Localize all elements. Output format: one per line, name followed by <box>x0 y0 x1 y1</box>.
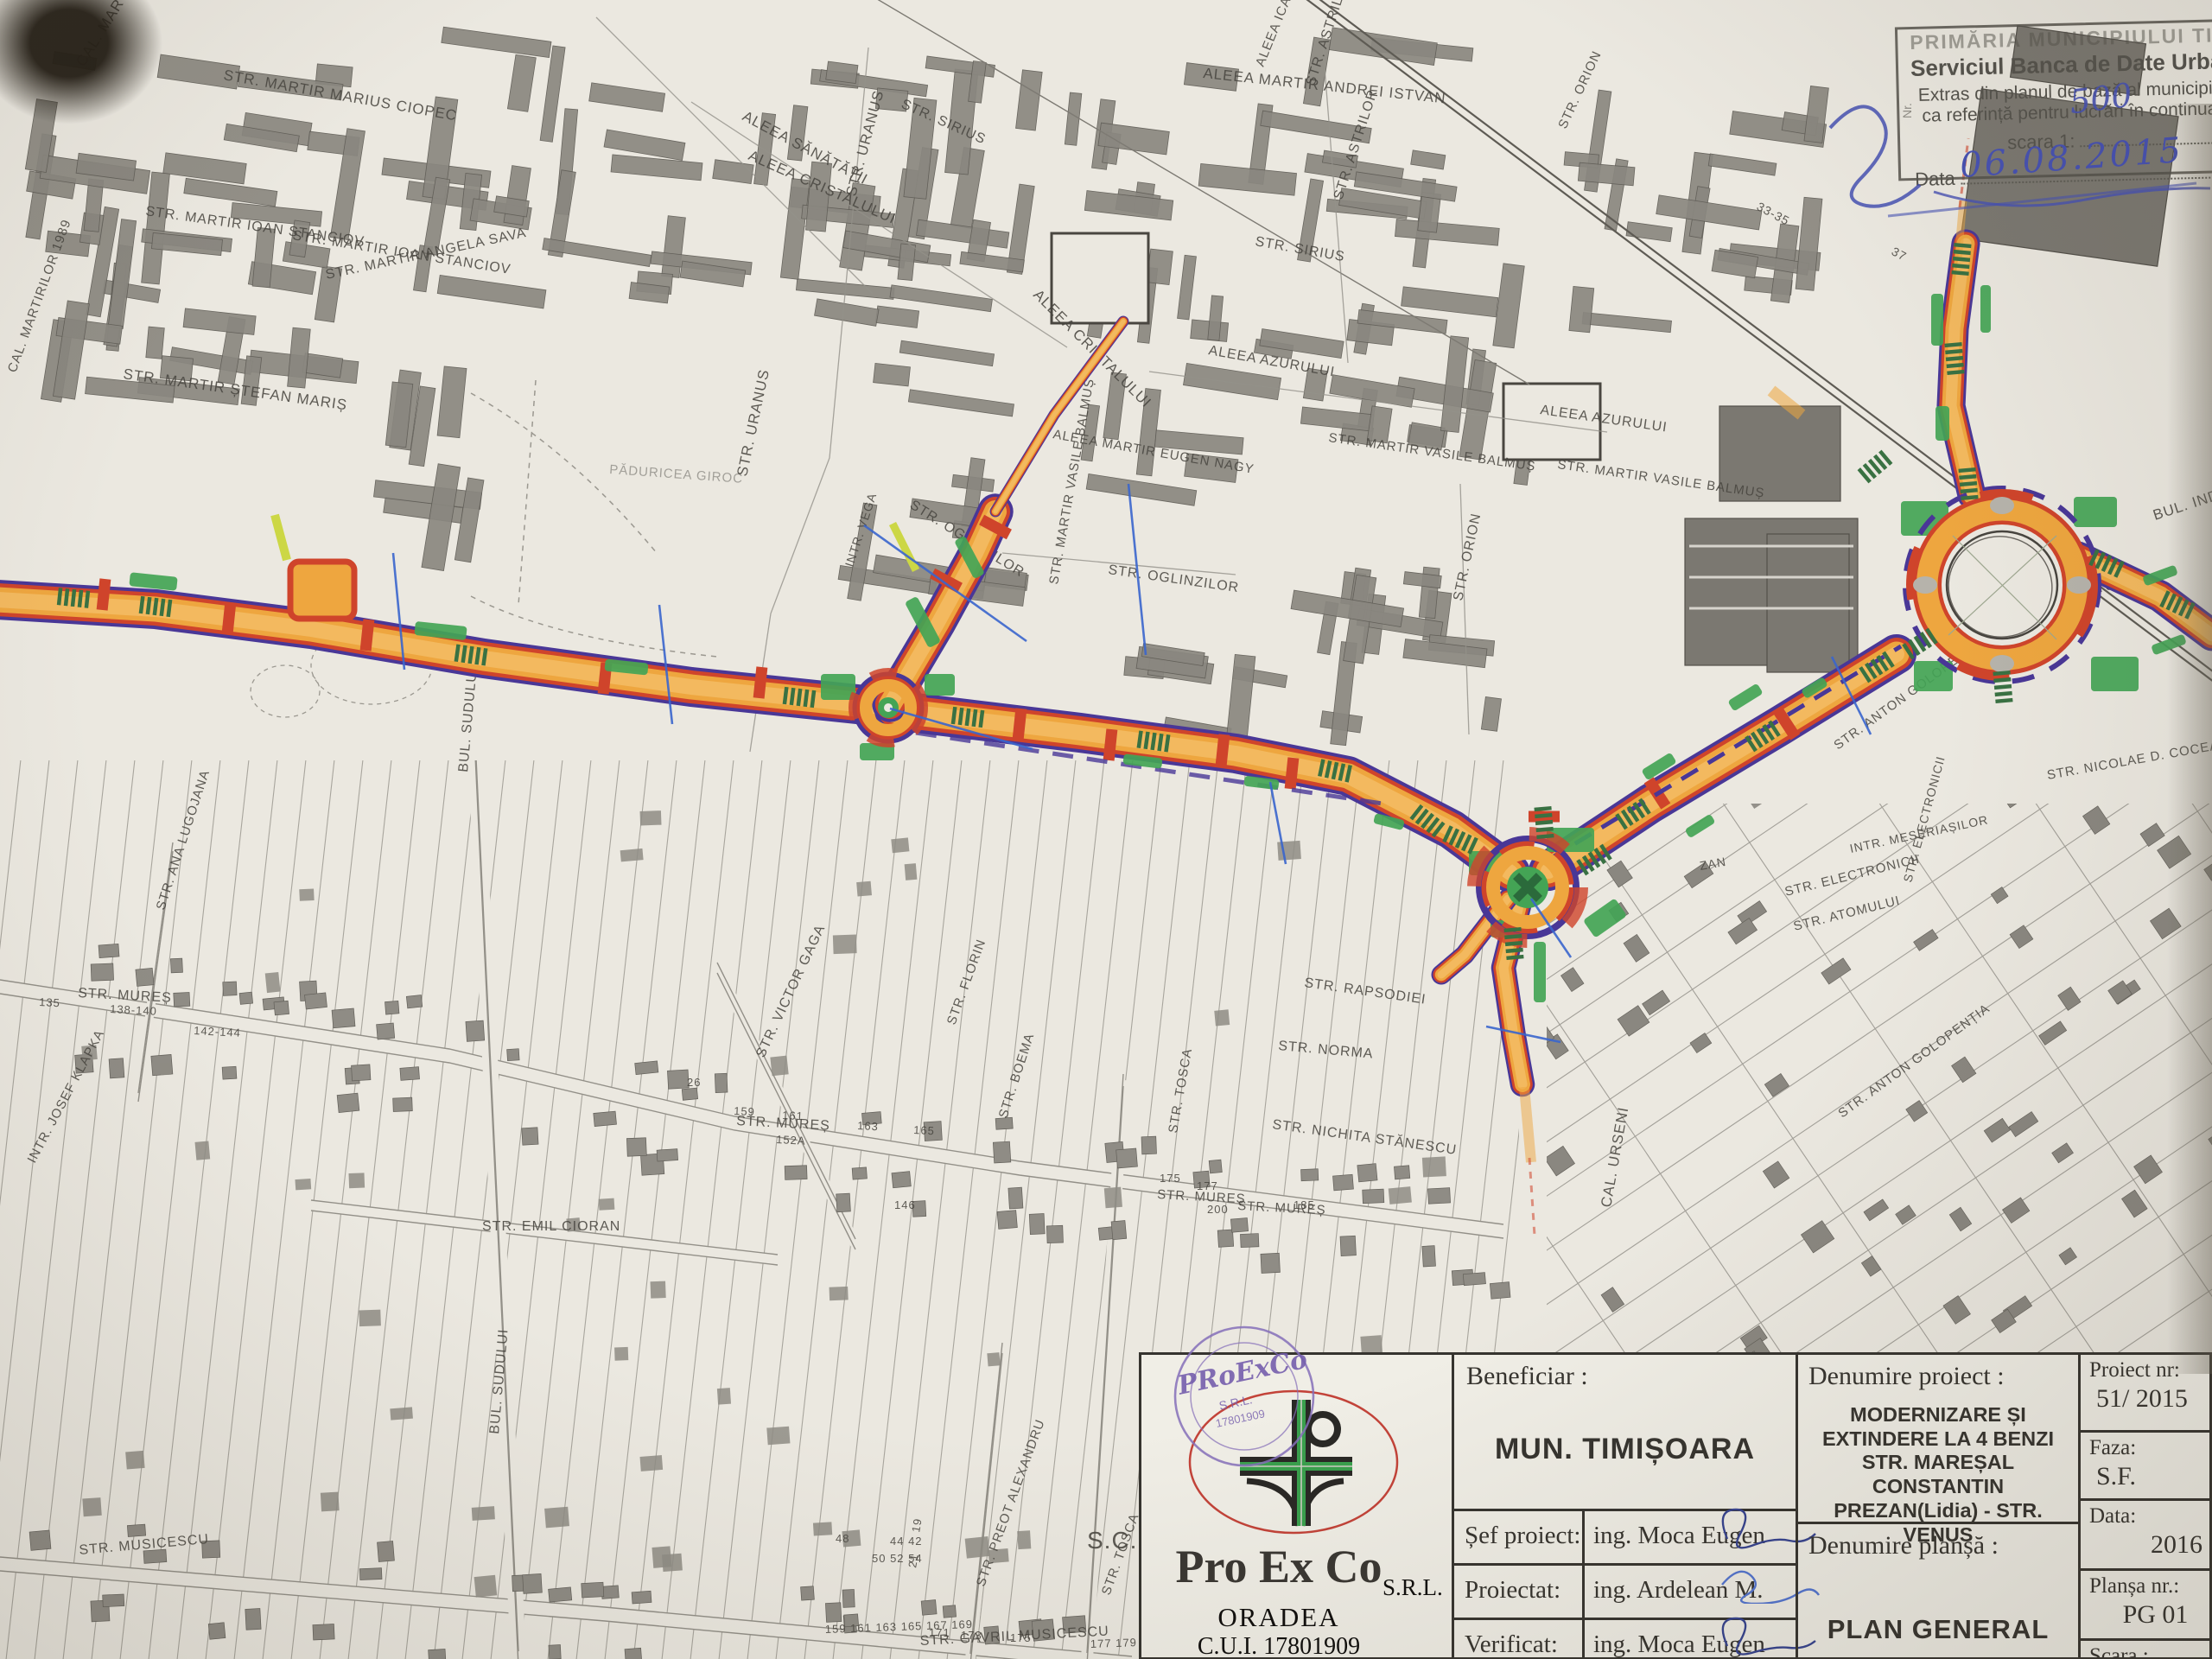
svg-text:PRoExCo: PRoExCo <box>1174 1344 1310 1402</box>
street-label: STR. TOSCA <box>1166 1047 1195 1135</box>
plansa-title: PLAN GENERAL <box>1798 1614 2078 1645</box>
street-label: STR. BOEMA <box>996 1031 1038 1120</box>
company-cui: C.U.I. 17801909 <box>1149 1633 1408 1659</box>
street-label: STR. URANUS <box>734 367 772 477</box>
proiectat-row: Proiectat: ing. Ardelean M. <box>1452 1563 1798 1620</box>
street-label: 19 <box>909 1517 925 1534</box>
street-label: STR. ELECTRONICII <box>1783 852 1922 899</box>
street-label: BUL. SUDULUI <box>456 666 480 772</box>
street-label: 200 <box>1207 1203 1229 1216</box>
pen-signature-blue <box>1797 86 2212 276</box>
street-label: 175 <box>1160 1172 1181 1185</box>
denumire-proiect-label: Denumire proiect : <box>1808 1362 2078 1391</box>
street-label: 135 <box>39 995 60 1009</box>
street-label: 26 <box>687 1076 701 1089</box>
street-label: STR. EMIL CIORAN <box>482 1219 620 1234</box>
street-label: 142-144 <box>194 1024 241 1039</box>
faza-cell: Faza: S.F. <box>2078 1430 2212 1498</box>
street-label: STR. NORMA <box>1278 1039 1375 1062</box>
street-label: STR. ORION <box>1451 512 1484 602</box>
photo-edge-shadow <box>2167 104 2212 1374</box>
beneficiar-value: MUN. TIMIȘOARA <box>1454 1433 1796 1466</box>
proexco-round-stamp: PRoExCo S.R.L. 17801909 <box>1168 1320 1320 1472</box>
street-label: STR. FLORIN <box>944 938 989 1027</box>
street-label: S.C. <box>1087 1527 1137 1554</box>
street-label: 159 <box>734 1104 755 1118</box>
street-label: 21 <box>906 1553 921 1569</box>
street-label: 33-35 <box>1755 200 1793 228</box>
photo-corner-shadow <box>0 0 199 156</box>
denumire-plansa-cell: Denumire planșă : PLAN GENERAL <box>1796 1522 2078 1659</box>
street-label: PĂDURICEA GIROC <box>609 462 744 486</box>
street-label: 163 <box>857 1119 879 1133</box>
company-suffix: S.R.L. <box>1382 1574 1443 1601</box>
plan-photo: CAL. MARTIRILORCAL. MARTIRILOR 1989STR. … <box>0 0 2212 1659</box>
sef-proiect-row: Șef proiect: ing. Moca Eugen <box>1452 1509 1798 1566</box>
street-label: 152A <box>776 1133 806 1147</box>
denumire-plansa-label: Denumire planșă : <box>1808 1531 2078 1560</box>
street-label: 48 <box>836 1532 849 1545</box>
street-label: 146 <box>894 1198 916 1211</box>
street-label: STR. NICHITA STĂNESCU <box>1271 1116 1458 1158</box>
street-label: ALEEA ICAR <box>1253 0 1298 68</box>
street-label: 44 42 <box>890 1535 923 1548</box>
data-cell: Data: 2016 <box>2078 1498 2212 1568</box>
beneficiar-cell: Beneficiar : MUN. TIMIȘOARA <box>1452 1355 1796 1509</box>
street-label: STR. TOSCA <box>1099 1511 1142 1597</box>
verificat-row: Verificat: ing. Moca Eugen <box>1452 1618 1798 1659</box>
company-name: Pro Ex Co <box>1149 1540 1408 1593</box>
street-label: CAL. URSENI <box>1598 1105 1631 1208</box>
street-label: ZAN <box>1699 855 1727 873</box>
street-label: 165 <box>913 1123 935 1137</box>
street-label: STR. OGLINZILOR <box>1107 563 1240 595</box>
plansa-nr-cell: Planșa nr.: PG 01 <box>2078 1568 2212 1638</box>
crosswalks-layer <box>59 245 2194 958</box>
street-label: STR. ANA LUGOJANA <box>154 768 213 912</box>
company-city: ORADEA <box>1149 1602 1408 1633</box>
denumire-proiect-cell: Denumire proiect : MODERNIZARE ȘI EXTIND… <box>1796 1355 2078 1522</box>
street-label: 171 <box>929 1626 950 1639</box>
street-label: 185 <box>1294 1198 1315 1211</box>
street-label: 177 <box>1197 1179 1218 1192</box>
street-label: 161 <box>782 1109 804 1122</box>
street-label: 175 <box>1010 1631 1032 1644</box>
scara-cell: Scara : <box>2078 1638 2212 1659</box>
street-label: 138-140 <box>110 1002 157 1018</box>
beneficiar-label: Beneficiar : <box>1466 1362 1796 1391</box>
street-label: INTR. JOSEF KLAPKA <box>25 1027 108 1166</box>
street-label: 173 <box>961 1629 982 1642</box>
street-label: STR. ANTON GOLOPENȚIA <box>1835 1001 1993 1122</box>
street-label: STR. ELECTRONICII <box>1900 754 1947 884</box>
